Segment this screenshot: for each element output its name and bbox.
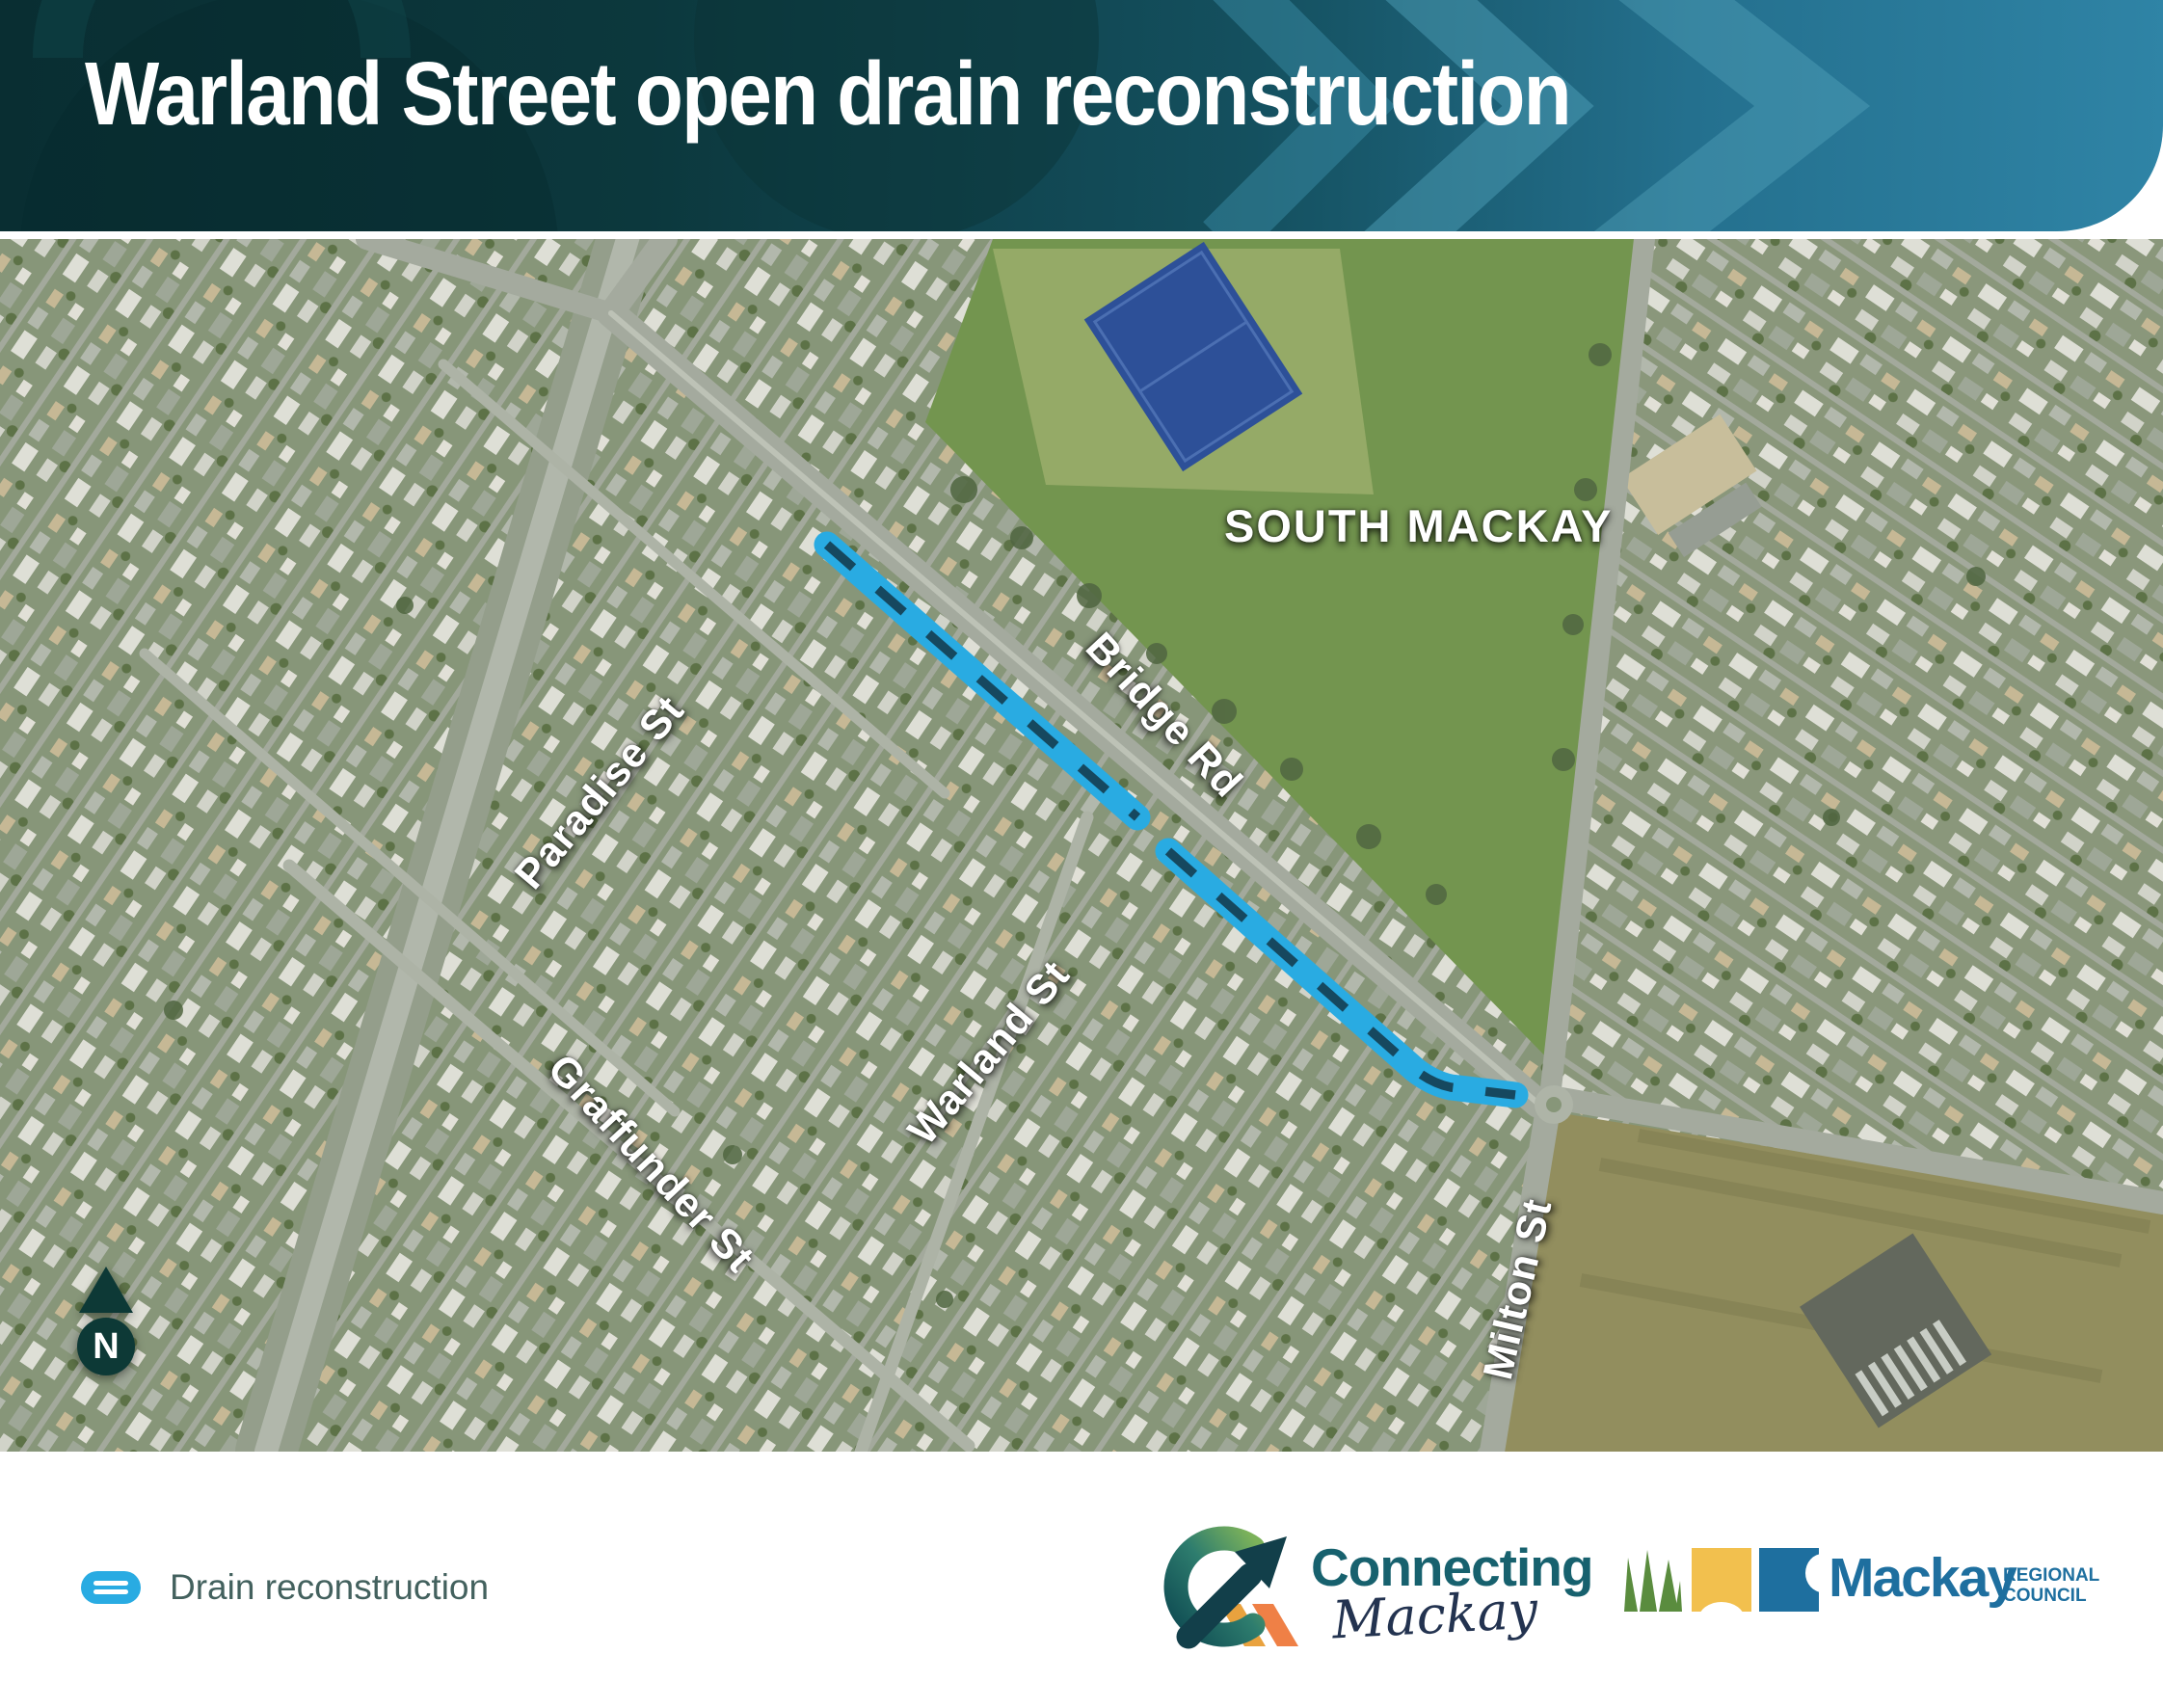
drain-legend-icon [81, 1571, 141, 1604]
footer: Drain reconstruction Connecting Ma [0, 1452, 2163, 1708]
mackay-council-council: COUNCIL [2003, 1586, 2099, 1606]
mackay-council-regional: REGIONAL [2003, 1565, 2099, 1586]
page-title: Warland Street open drain reconstruction [85, 42, 1570, 146]
connecting-mackay-mark-icon [1142, 1519, 1306, 1649]
mackay-council-suffix: REGIONAL COUNCIL [2003, 1565, 2099, 1606]
map-area: SOUTH MACKAY Paradise St Bridge Rd Warla… [0, 239, 2163, 1452]
council-sun-tile [1692, 1548, 1751, 1612]
north-arrow-circle: N [77, 1318, 135, 1375]
legend: Drain reconstruction [81, 1567, 489, 1608]
north-arrow-letter: N [93, 1328, 119, 1365]
council-grass-tile [1624, 1550, 1682, 1612]
north-arrow: N [75, 1267, 137, 1375]
region-label-south-mackay: SOUTH MACKAY [1224, 499, 1614, 552]
north-arrow-triangle [79, 1267, 133, 1313]
page: Warland Street open drain reconstruction [0, 0, 2163, 1708]
legend-label: Drain reconstruction [170, 1567, 489, 1608]
mackay-council-name: Mackay [1829, 1546, 2016, 1610]
mackay-council-mark-icon [1622, 1548, 1819, 1612]
aerial-map-image [0, 239, 2163, 1452]
header-banner: Warland Street open drain reconstruction [0, 0, 2163, 231]
connecting-mackay-word2: Mackay [1330, 1579, 1538, 1650]
council-river-tile [1759, 1548, 1819, 1612]
